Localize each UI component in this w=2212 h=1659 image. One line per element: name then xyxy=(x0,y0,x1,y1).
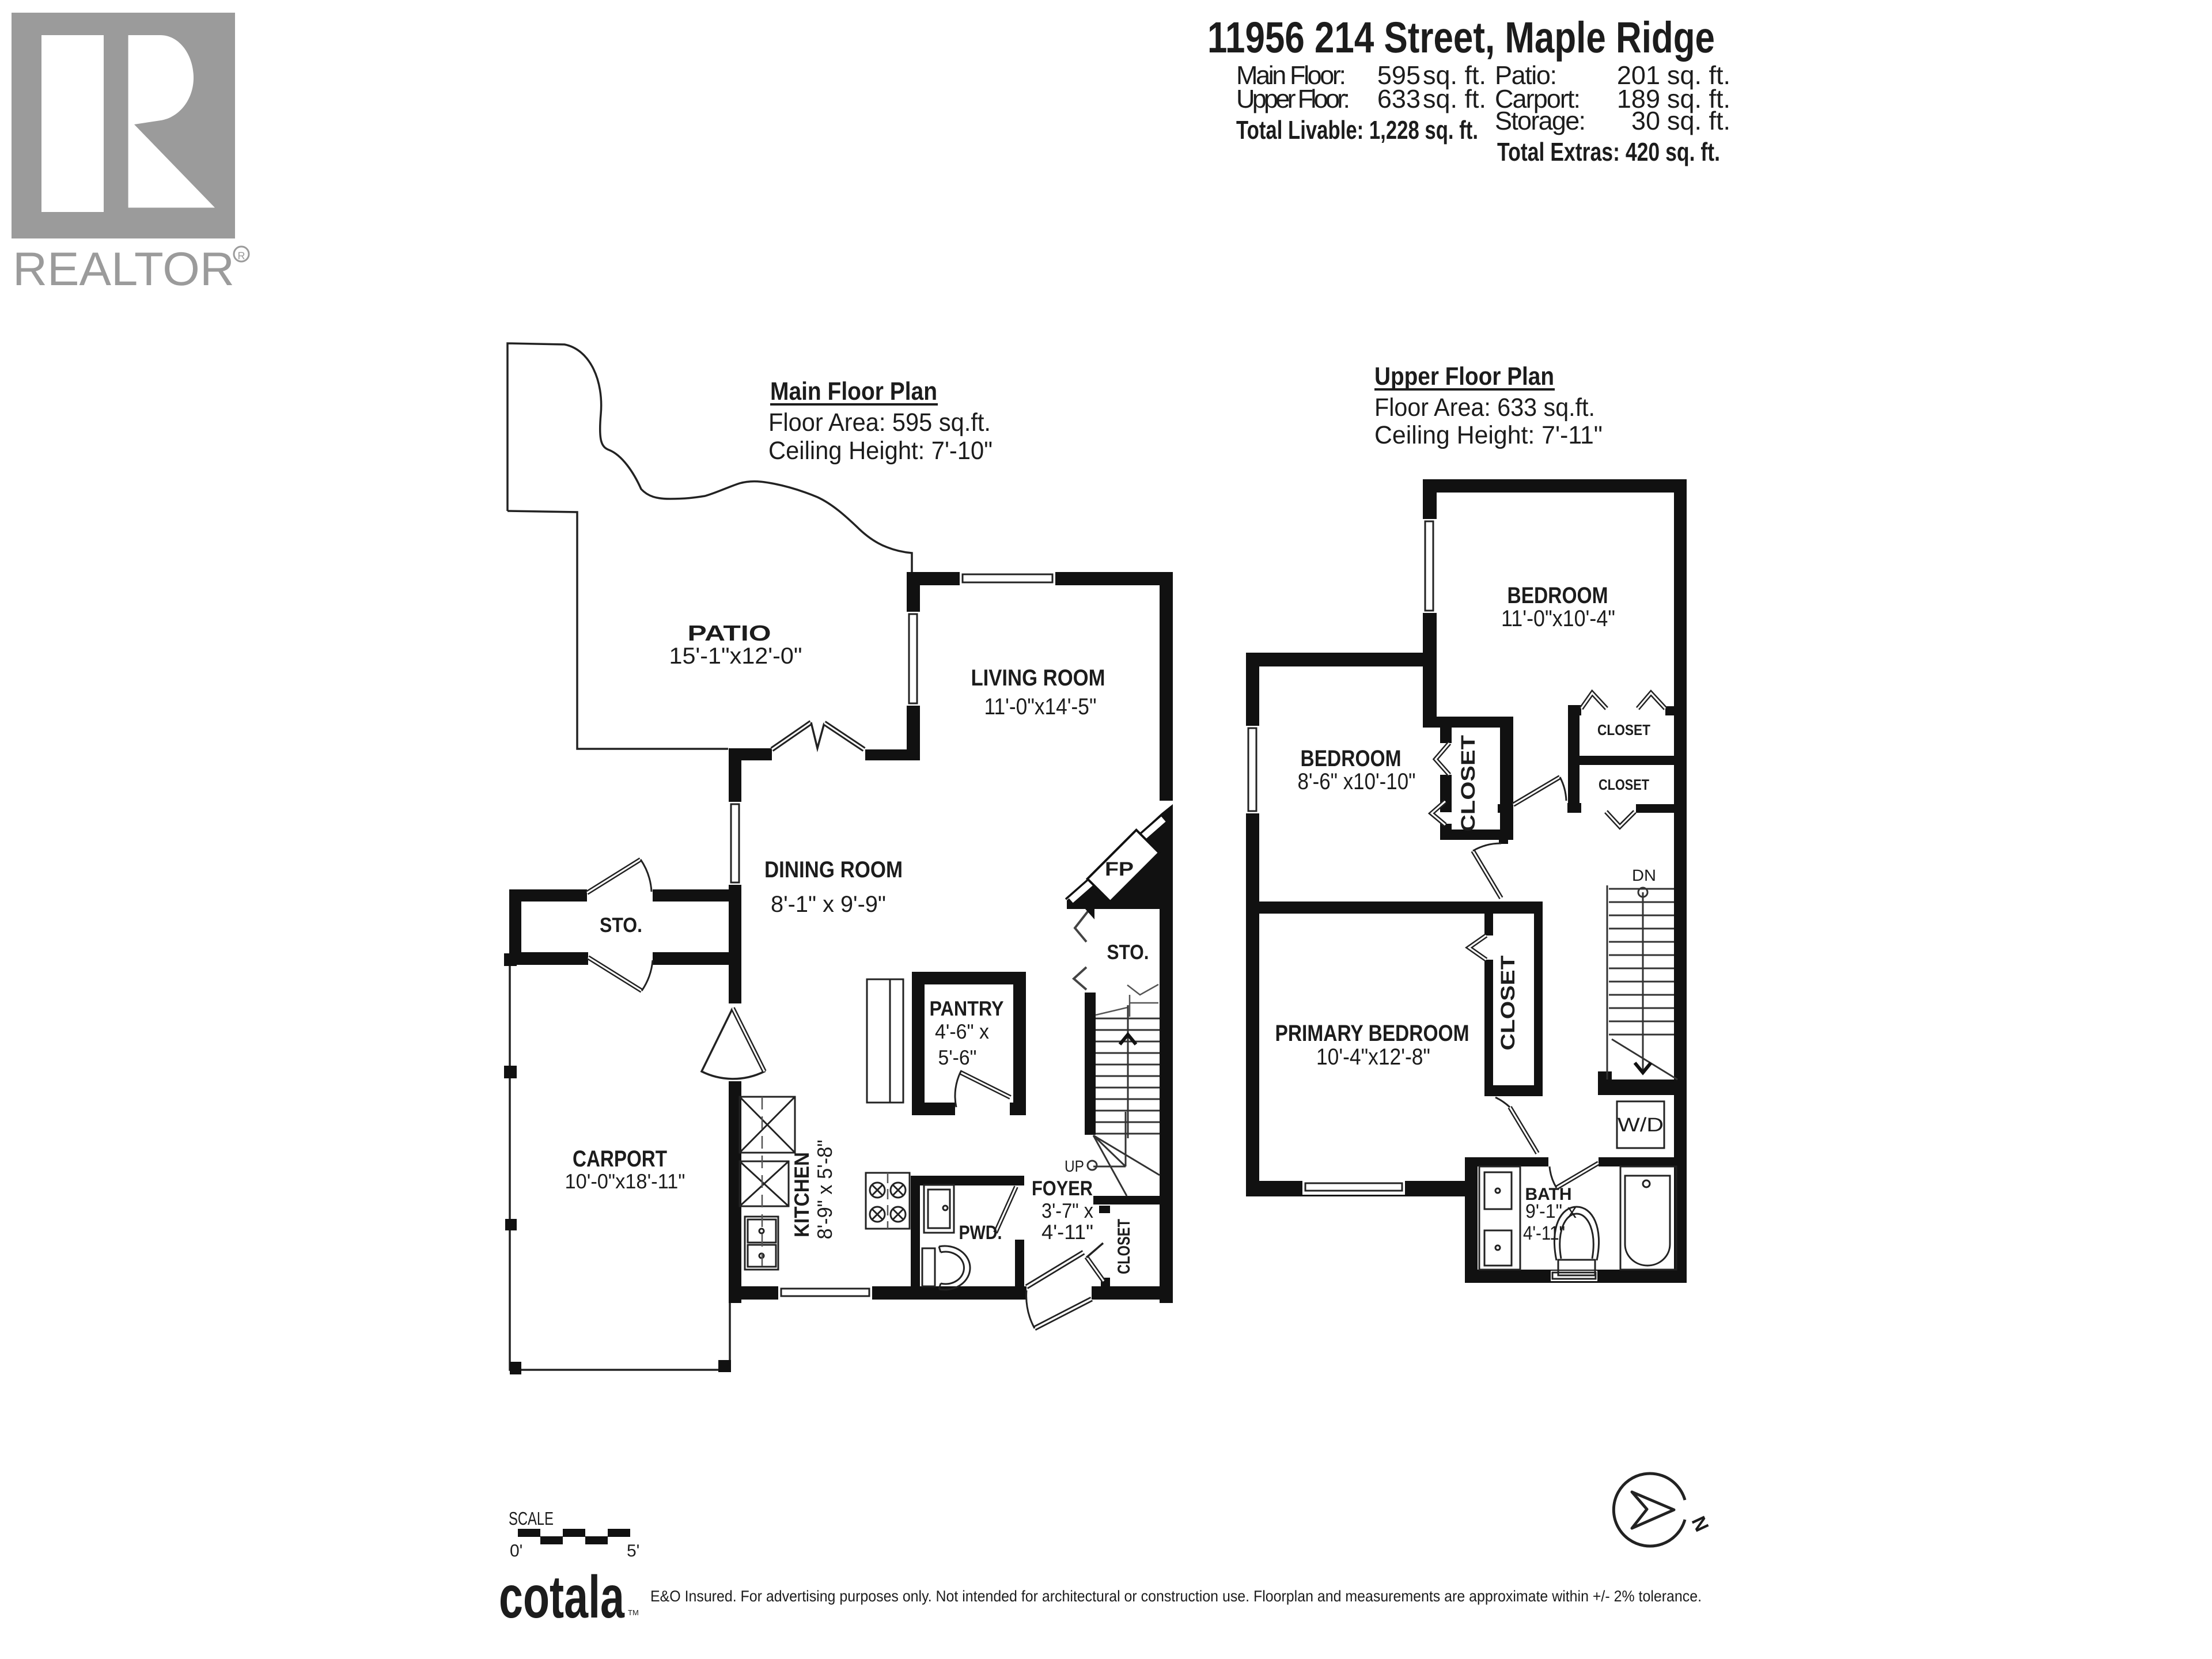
svg-text:8'-6" x10'-10": 8'-6" x10'-10" xyxy=(1298,769,1416,794)
svg-text:REALTOR: REALTOR xyxy=(13,243,234,296)
svg-text:4'-11": 4'-11" xyxy=(1523,1222,1565,1244)
svg-text:5'-6": 5'-6" xyxy=(938,1046,977,1069)
svg-text:sq. ft.: sq. ft. xyxy=(1667,106,1730,135)
svg-text:PWD.: PWD. xyxy=(959,1222,1002,1244)
svg-text:Floor Area: 595 sq.ft.: Floor Area: 595 sq.ft. xyxy=(768,408,991,437)
svg-text:FOYER: FOYER xyxy=(1032,1176,1093,1200)
svg-text:PANTRY: PANTRY xyxy=(930,997,1004,1020)
svg-text:10'-4"x12'-8": 10'-4"x12'-8" xyxy=(1316,1044,1430,1070)
svg-text:Upper Floor Plan: Upper Floor Plan xyxy=(1374,362,1554,391)
svg-text:CLOSET: CLOSET xyxy=(1115,1219,1134,1274)
svg-text:SCALE: SCALE xyxy=(509,1508,554,1529)
svg-text:11956 214 Street, Maple Ridge: 11956 214 Street, Maple Ridge xyxy=(1207,13,1715,62)
svg-text:CLOSET: CLOSET xyxy=(1497,955,1519,1050)
svg-text:Ceiling Height: 7'-11": Ceiling Height: 7'-11" xyxy=(1374,421,1603,449)
svg-text:FP: FP xyxy=(1105,858,1134,880)
svg-text:PRIMARY BEDROOM: PRIMARY BEDROOM xyxy=(1275,1021,1469,1046)
svg-text:E&O Insured. For advertising p: E&O Insured. For advertising purposes on… xyxy=(650,1588,1702,1605)
svg-text:CLOSET: CLOSET xyxy=(1457,735,1479,832)
svg-text:R: R xyxy=(238,250,245,262)
svg-text:CLOSET: CLOSET xyxy=(1597,721,1650,738)
svg-text:CLOSET: CLOSET xyxy=(1599,776,1649,793)
svg-text:STO.: STO. xyxy=(1107,940,1149,964)
svg-text:8'-1" x 9'-9": 8'-1" x 9'-9" xyxy=(771,892,886,917)
svg-text:BEDROOM: BEDROOM xyxy=(1301,746,1402,771)
svg-text:4'-11": 4'-11" xyxy=(1041,1220,1093,1244)
svg-text:Floor Area: 633 sq.ft.: Floor Area: 633 sq.ft. xyxy=(1374,393,1595,422)
svg-text:633: 633 xyxy=(1377,84,1421,113)
svg-text:30: 30 xyxy=(1631,106,1660,135)
svg-text:Ceiling Height: 7'-10": Ceiling Height: 7'-10" xyxy=(768,437,993,465)
svg-text:KITCHEN: KITCHEN xyxy=(790,1152,813,1237)
svg-text:W/D: W/D xyxy=(1618,1114,1664,1136)
svg-text:9'-1" x: 9'-1" x xyxy=(1525,1200,1577,1222)
svg-text:11'-0"x10'-4": 11'-0"x10'-4" xyxy=(1501,606,1615,631)
svg-text:15'-1"x12'-0": 15'-1"x12'-0" xyxy=(669,643,802,669)
svg-text:Total Livable: 1,228 sq. ft.: Total Livable: 1,228 sq. ft. xyxy=(1236,115,1478,145)
svg-text:CARPORT: CARPORT xyxy=(573,1146,667,1172)
svg-text:UP: UP xyxy=(1065,1157,1084,1175)
svg-text:DINING ROOM: DINING ROOM xyxy=(764,857,903,882)
svg-text:BEDROOM: BEDROOM xyxy=(1508,583,1608,608)
svg-text:Upper Floor:: Upper Floor: xyxy=(1236,84,1350,113)
svg-text:LIVING ROOM: LIVING ROOM xyxy=(971,665,1105,691)
svg-text:sq. ft.: sq. ft. xyxy=(1423,84,1486,113)
svg-text:STO.: STO. xyxy=(600,913,642,937)
svg-text:11'-0"x14'-5": 11'-0"x14'-5" xyxy=(984,694,1097,719)
svg-text:Main Floor Plan: Main Floor Plan xyxy=(770,377,937,406)
svg-text:TM: TM xyxy=(628,1608,639,1617)
svg-text:Storage:: Storage: xyxy=(1495,106,1586,135)
svg-text:0': 0' xyxy=(510,1541,522,1560)
svg-text:Total Extras: 420 sq. ft.: Total Extras: 420 sq. ft. xyxy=(1497,137,1720,166)
svg-text:PATIO: PATIO xyxy=(688,622,771,646)
svg-text:10'-0"x18'-11": 10'-0"x18'-11" xyxy=(565,1169,685,1193)
svg-text:5': 5' xyxy=(627,1541,639,1560)
svg-text:8'-9" x 5'-8": 8'-9" x 5'-8" xyxy=(813,1140,836,1240)
svg-text:DN: DN xyxy=(1632,866,1656,884)
svg-text:cotala: cotala xyxy=(499,1564,625,1631)
svg-text:4'-6" x: 4'-6" x xyxy=(935,1020,989,1043)
svg-text:3'-7" x: 3'-7" x xyxy=(1041,1199,1093,1222)
